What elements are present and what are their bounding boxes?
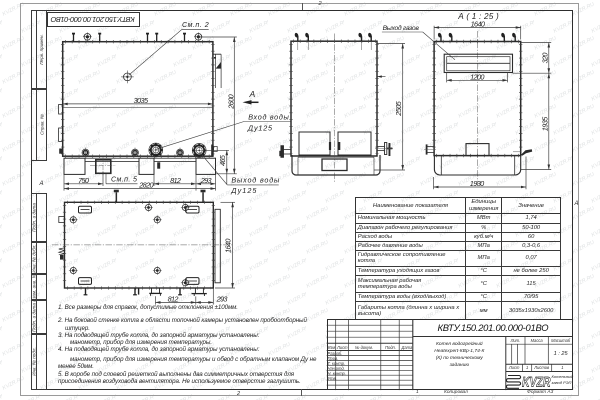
- svg-text:KVZR: KVZR: [522, 374, 551, 390]
